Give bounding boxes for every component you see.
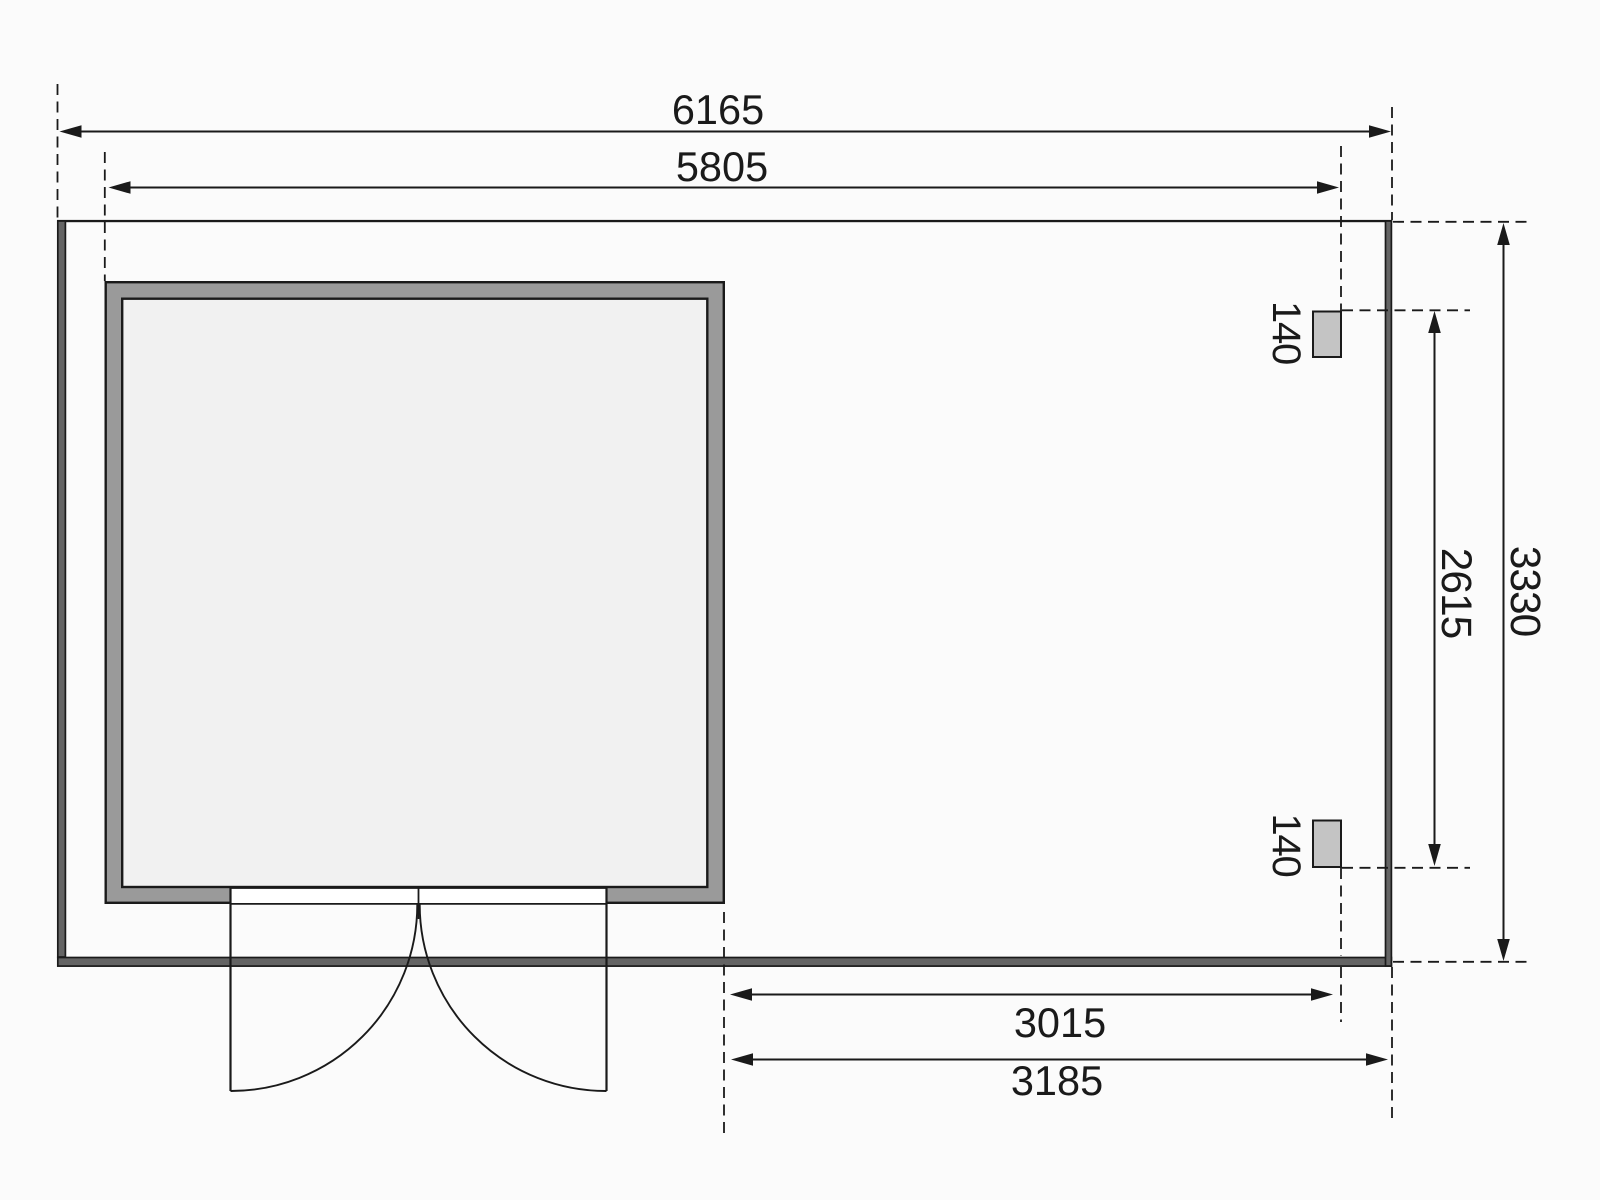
svg-text:2615: 2615 bbox=[1432, 548, 1479, 639]
svg-text:140: 140 bbox=[1264, 813, 1308, 876]
svg-text:3015: 3015 bbox=[1014, 999, 1106, 1046]
svg-text:6165: 6165 bbox=[672, 86, 764, 133]
svg-text:140: 140 bbox=[1264, 301, 1308, 364]
svg-text:3185: 3185 bbox=[1011, 1057, 1103, 1104]
svg-text:3330: 3330 bbox=[1501, 546, 1548, 637]
svg-text:5805: 5805 bbox=[676, 143, 768, 190]
